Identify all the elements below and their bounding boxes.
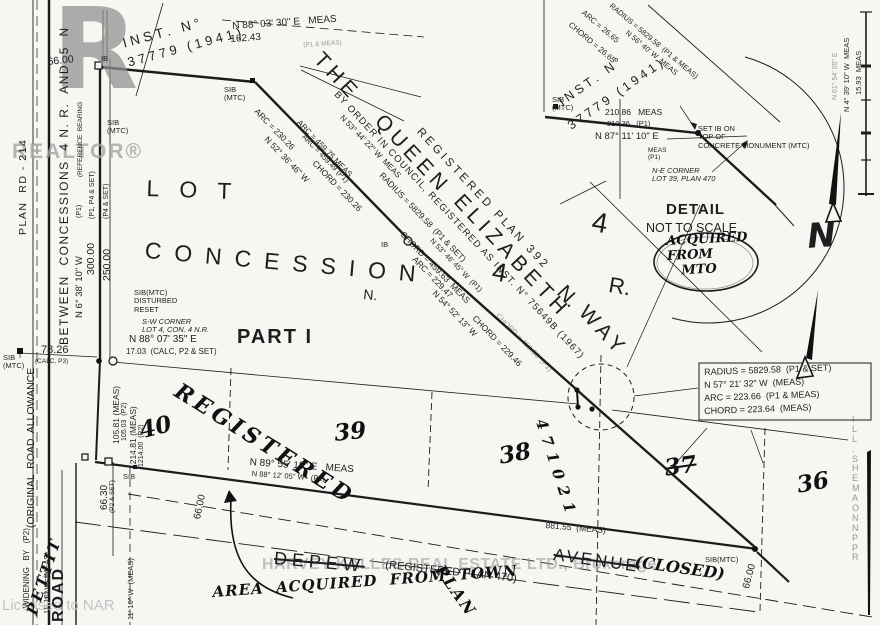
note-p1-p4-set: (P1, P4 & SET) bbox=[89, 171, 97, 219]
sib-mtc-corner: SIB(MTC) bbox=[705, 556, 738, 564]
original-road-allowance: (ORIGINAL ROAD ALLOWANCE bbox=[26, 368, 38, 528]
lot-line-39-38 bbox=[428, 392, 432, 491]
note-p4-set: (P4 & SET) bbox=[103, 184, 111, 219]
dim-210-86: 210.86 MEAS bbox=[605, 108, 662, 118]
north-letter: N bbox=[806, 216, 837, 256]
note-calc-p3: (CALC, P3) bbox=[35, 358, 68, 365]
acquired-from-mto-hw: ACQUIRED FROM MTO bbox=[666, 231, 749, 280]
sib-disturbed-reset: SIB(MTC) DISTURBED RESET bbox=[134, 289, 177, 314]
between-concessions: BETWEEN CONCESSIONS 4 N. R. AND 5 N bbox=[58, 26, 71, 345]
ne-corner-note: N-E CORNER LOT 39, PLAN 470 bbox=[652, 167, 715, 184]
dim-210-36: 210.36 (P1) bbox=[607, 120, 650, 128]
note-meas-p1: MEAS (P1) bbox=[648, 147, 666, 162]
widening-by-note: WIDENING BY (P2) bbox=[23, 528, 32, 608]
brg-n61-54-05: N 61° 54' 05" E bbox=[832, 53, 840, 100]
lot-stencil: LOT bbox=[146, 176, 252, 205]
sib-mtc-2: SIB (MTC) bbox=[224, 86, 245, 103]
lot-39: 39 bbox=[333, 418, 368, 447]
note-p1: (P1) bbox=[76, 205, 84, 218]
sib-mtc-road: SIB (MTC) bbox=[3, 354, 24, 371]
lot-line-37-36 bbox=[760, 428, 765, 611]
sib-marker-3: SIB bbox=[123, 473, 135, 481]
dim-17-03: 17.03 (CALC, P2 & SET) bbox=[126, 348, 217, 357]
survey-plan-scan: RREALTOR®Licensed to NARHARVEY KALLES RE… bbox=[0, 0, 880, 625]
r-stencil: R. bbox=[607, 273, 633, 301]
scale-bar bbox=[858, 12, 874, 196]
ib-marker-top: IB bbox=[101, 55, 108, 63]
sib-mtc-1: SIB (MTC) bbox=[107, 119, 128, 136]
note-p2-set: (P2 & SET) bbox=[109, 480, 116, 513]
dim-15-93: 15.93 MEAS bbox=[855, 51, 863, 95]
scan-edge-artifact bbox=[867, 450, 871, 615]
brg-n87-11-10: N 87° 11' 10" E bbox=[595, 132, 659, 143]
part-1: PART I bbox=[237, 326, 313, 348]
right-edge-text: I L L . S H E M A O N N P P R bbox=[852, 415, 860, 563]
plan-rd-214: PLAN RD - 214 bbox=[18, 139, 30, 235]
lot-line-38-37 bbox=[596, 355, 601, 625]
reference-bearing-note: (REFERENCE BEARING bbox=[77, 102, 84, 177]
lot-37: 37 bbox=[663, 452, 698, 482]
brg-n88-07-35: N 88° 07' 35" E bbox=[129, 334, 197, 345]
sw-corner-note: S-W CORNER LOT 4, CON. 4 N.R. bbox=[142, 318, 209, 335]
detail-title: DETAIL bbox=[666, 202, 725, 219]
dim-250-00: 250.00 bbox=[102, 249, 114, 281]
set-ib-note: SET IB ON TOP OF CONCRETE MONUMENT (MTC) bbox=[698, 125, 810, 150]
brg-n1-11-10-b: 11' 10" W (MEAS) bbox=[127, 558, 135, 620]
dim-300-00: 300.00 bbox=[86, 243, 98, 275]
dim-78-26: 78.26 bbox=[41, 344, 69, 356]
lot-36: 36 bbox=[795, 467, 831, 498]
lot-38: 38 bbox=[497, 438, 533, 469]
dim-1214-00: 1214.00 (P2) bbox=[138, 425, 146, 467]
brg-n1-11-10-a: 11' 10" W (MEAS) bbox=[43, 552, 51, 614]
brg-n4-39-10: N 4° 39' 10" W MEAS bbox=[843, 38, 851, 112]
dim-162-43: 162.43 bbox=[230, 32, 261, 45]
ib-on-line: IB bbox=[381, 241, 388, 249]
n-stencil: N. bbox=[363, 287, 378, 304]
